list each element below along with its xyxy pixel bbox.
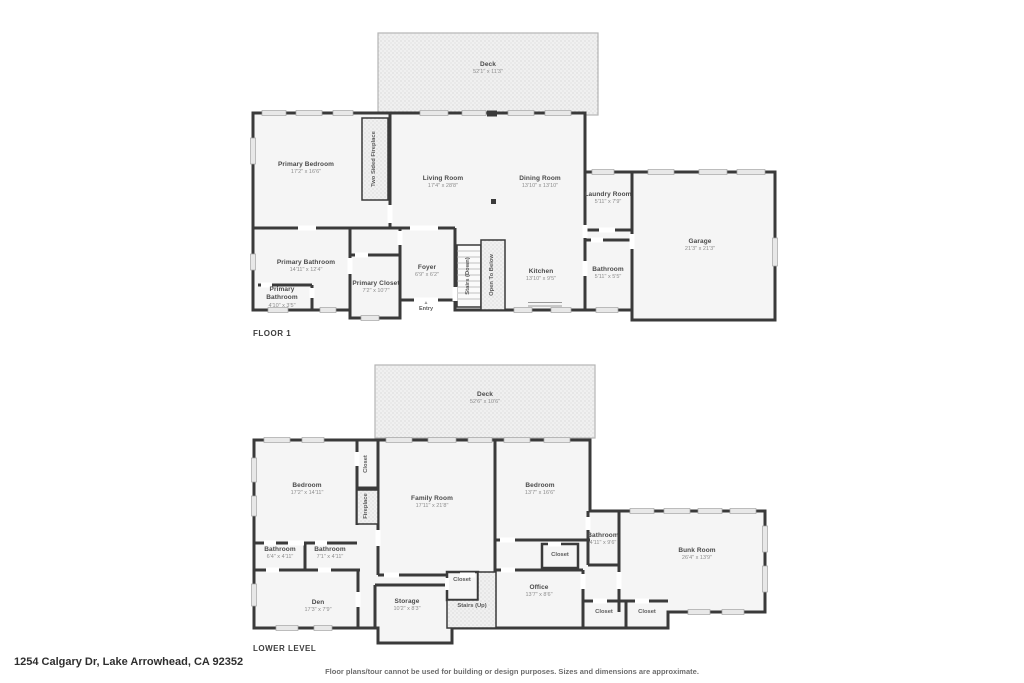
floor1-stairs-area <box>457 245 481 307</box>
floor1-fireplace-area <box>362 118 388 200</box>
structural-post <box>491 199 496 204</box>
entry-label: Entry <box>419 306 433 312</box>
lower-deck-area <box>375 365 595 438</box>
disclaimer-text: Floor plans/tour cannot be used for buil… <box>325 667 699 676</box>
wall-nub <box>487 111 497 117</box>
floor1-caption: FLOOR 1 <box>253 329 291 338</box>
floor1-plan <box>251 33 778 321</box>
lower-level-caption: LOWER LEVEL <box>253 644 316 653</box>
floor1-deck-area <box>378 33 598 115</box>
bedroom-closet-area <box>542 544 578 568</box>
floor1-exterior-walls <box>253 113 775 320</box>
open-to-below-area <box>481 240 505 310</box>
property-address: 1254 Calgary Dr, Lake Arrowhead, CA 9235… <box>14 656 243 668</box>
entry-marker: ▲ Entry <box>419 301 433 312</box>
floorplan-drawing <box>0 0 1024 683</box>
lower-fireplace-area <box>357 490 378 524</box>
lower-level-plan <box>252 365 768 643</box>
floorplan-page: Deck 52'1" x 11'3" Primary Bedroom 17'2"… <box>0 0 1024 683</box>
